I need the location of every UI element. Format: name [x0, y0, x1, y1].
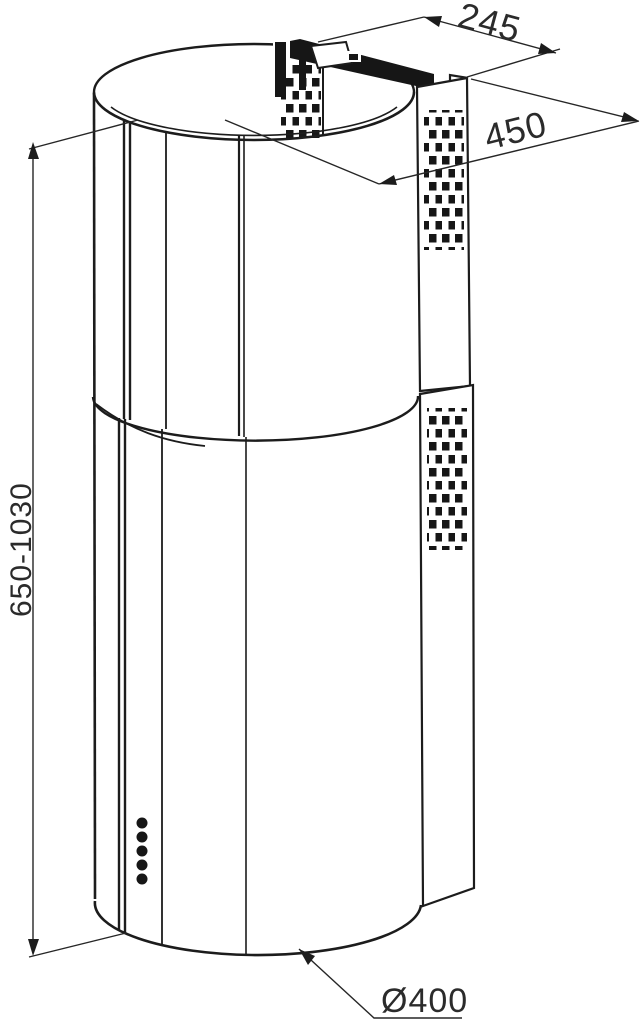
chimney-strip-lower	[420, 385, 474, 906]
control-button	[137, 818, 148, 829]
arrowhead	[28, 939, 39, 956]
arrowhead	[379, 175, 397, 185]
dimension-245-label: 245	[454, 0, 526, 50]
bracket-plate	[311, 42, 352, 68]
control-button	[137, 860, 148, 871]
vent-grille-lower	[427, 408, 467, 550]
dimension-450-label: 450	[480, 103, 551, 158]
extension-line	[29, 120, 138, 149]
seams-lower-section	[119, 418, 246, 955]
seams-upper-section	[124, 120, 244, 437]
dimension-height-label: 650-1030	[5, 482, 38, 617]
section-junction-arc	[93, 396, 418, 441]
bottom-rim-arc	[95, 901, 421, 955]
control-button	[137, 832, 148, 843]
top-rim-inner-arc	[111, 107, 397, 135]
dimension-body-diameter: Ø400	[299, 949, 468, 1020]
drawing-sheet: 245 450 650-1030 Ø400	[0, 0, 643, 1025]
bracket-slot	[349, 54, 358, 60]
hood-body	[93, 39, 474, 955]
hood-technical-drawing: 245 450 650-1030 Ø400	[0, 0, 643, 1025]
arrowhead	[621, 112, 639, 122]
arrowhead	[424, 16, 442, 27]
dimension-diameter-label: Ø400	[381, 982, 468, 1020]
extension-line	[318, 17, 424, 42]
top-front-grille-perforation	[281, 62, 321, 138]
arrowhead	[538, 43, 556, 54]
arrowhead	[28, 142, 39, 159]
control-buttons	[137, 818, 148, 885]
extension-line	[29, 933, 126, 957]
control-button	[137, 874, 148, 885]
vent-grille-upper	[424, 110, 464, 250]
chimney-strip-upper	[417, 78, 470, 391]
body-left-silhouette	[94, 93, 95, 899]
section-junction-inner-arc	[96, 404, 205, 446]
control-button	[137, 846, 148, 857]
